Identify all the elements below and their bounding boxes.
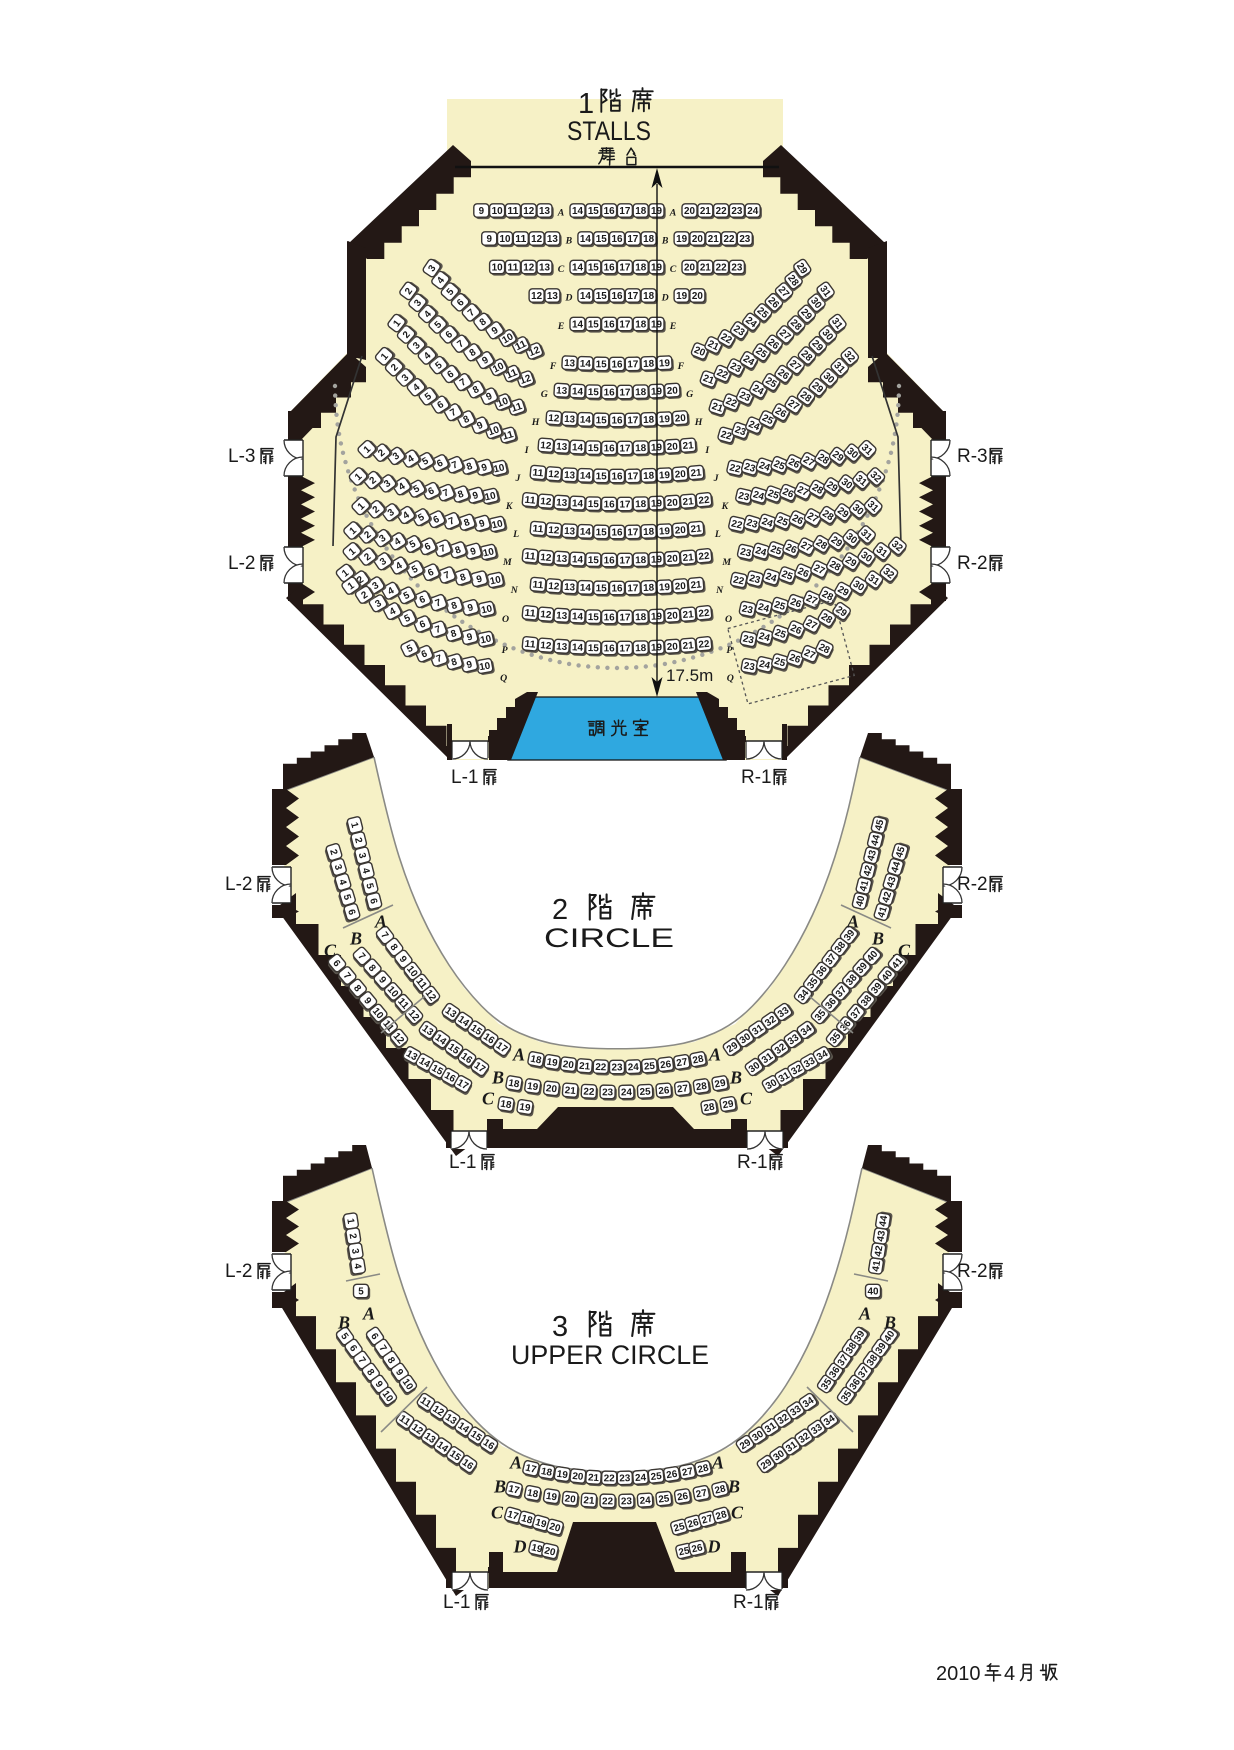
svg-text:17.5m: 17.5m bbox=[666, 666, 713, 685]
svg-text:21: 21 bbox=[690, 523, 702, 535]
svg-text:CIRCLE: CIRCLE bbox=[544, 923, 674, 953]
svg-text:17: 17 bbox=[619, 555, 631, 566]
svg-text:15: 15 bbox=[588, 443, 600, 454]
svg-text:C: C bbox=[670, 264, 677, 275]
svg-text:14: 14 bbox=[572, 498, 584, 509]
svg-text:21: 21 bbox=[708, 234, 720, 245]
svg-text:R-2: R-2 bbox=[957, 553, 988, 574]
svg-text:12: 12 bbox=[540, 640, 552, 652]
svg-text:C: C bbox=[491, 1503, 504, 1523]
svg-text:26: 26 bbox=[666, 1469, 679, 1482]
svg-text:14: 14 bbox=[580, 291, 592, 302]
svg-text:14: 14 bbox=[580, 415, 592, 426]
svg-text:13: 13 bbox=[564, 358, 576, 370]
svg-text:21: 21 bbox=[682, 609, 694, 621]
svg-text:19: 19 bbox=[659, 470, 671, 482]
svg-text:16: 16 bbox=[604, 612, 616, 623]
svg-text:B: B bbox=[337, 1313, 350, 1333]
svg-text:24: 24 bbox=[628, 1062, 640, 1073]
svg-text:R-1: R-1 bbox=[741, 767, 772, 788]
svg-text:L-2: L-2 bbox=[228, 553, 255, 574]
svg-text:18: 18 bbox=[643, 583, 655, 594]
svg-text:12: 12 bbox=[540, 440, 552, 452]
svg-text:21: 21 bbox=[682, 552, 694, 564]
svg-text:18: 18 bbox=[643, 415, 655, 426]
svg-text:M: M bbox=[502, 557, 512, 568]
svg-text:16: 16 bbox=[604, 443, 616, 454]
svg-text:44: 44 bbox=[878, 1214, 891, 1227]
svg-text:Q: Q bbox=[500, 673, 507, 684]
svg-text:O: O bbox=[725, 614, 732, 625]
svg-text:42: 42 bbox=[873, 1244, 886, 1257]
svg-text:13: 13 bbox=[564, 470, 576, 482]
svg-text:22: 22 bbox=[724, 234, 736, 245]
svg-text:E: E bbox=[669, 321, 677, 332]
svg-text:16: 16 bbox=[612, 471, 624, 482]
svg-text:16: 16 bbox=[612, 583, 624, 594]
svg-text:18: 18 bbox=[635, 443, 647, 454]
svg-text:17: 17 bbox=[619, 319, 631, 330]
svg-text:25: 25 bbox=[658, 1493, 671, 1505]
svg-text:D: D bbox=[513, 1537, 527, 1557]
svg-text:23: 23 bbox=[731, 262, 743, 273]
svg-text:15: 15 bbox=[588, 612, 600, 623]
svg-text:27: 27 bbox=[677, 1083, 690, 1095]
svg-text:11: 11 bbox=[515, 234, 527, 245]
svg-text:24: 24 bbox=[635, 1472, 647, 1484]
svg-text:17: 17 bbox=[627, 291, 639, 302]
svg-text:18: 18 bbox=[643, 471, 655, 482]
svg-text:15: 15 bbox=[588, 555, 600, 566]
svg-text:14: 14 bbox=[572, 262, 584, 273]
svg-text:11: 11 bbox=[532, 467, 544, 479]
svg-text:21: 21 bbox=[682, 496, 694, 508]
svg-text:12: 12 bbox=[523, 262, 535, 273]
svg-text:Q: Q bbox=[727, 673, 734, 684]
svg-text:21: 21 bbox=[564, 1085, 576, 1097]
svg-text:15: 15 bbox=[596, 471, 608, 482]
svg-text:18: 18 bbox=[635, 499, 647, 510]
svg-text:12: 12 bbox=[548, 525, 560, 537]
svg-text:L-2: L-2 bbox=[225, 1261, 252, 1282]
svg-text:19: 19 bbox=[556, 1469, 569, 1482]
svg-text:23: 23 bbox=[731, 206, 743, 217]
svg-text:17: 17 bbox=[619, 206, 631, 217]
svg-text:20: 20 bbox=[674, 525, 686, 537]
svg-text:17: 17 bbox=[627, 359, 639, 370]
svg-text:23: 23 bbox=[739, 234, 751, 245]
svg-text:16: 16 bbox=[604, 499, 616, 510]
svg-text:20: 20 bbox=[545, 1083, 558, 1095]
svg-text:24: 24 bbox=[621, 1087, 633, 1098]
svg-text:14: 14 bbox=[572, 206, 584, 217]
svg-text:14: 14 bbox=[580, 359, 592, 370]
svg-text:12: 12 bbox=[540, 552, 552, 564]
svg-text:11: 11 bbox=[524, 495, 537, 507]
svg-text:22: 22 bbox=[698, 639, 711, 651]
svg-text:A: A bbox=[512, 1045, 525, 1065]
svg-text:N: N bbox=[715, 585, 724, 596]
svg-text:16: 16 bbox=[612, 234, 624, 245]
svg-text:A: A bbox=[846, 912, 859, 932]
svg-text:D: D bbox=[707, 1537, 721, 1557]
svg-text:13: 13 bbox=[547, 234, 559, 245]
svg-text:18: 18 bbox=[643, 291, 655, 302]
svg-text:13: 13 bbox=[556, 553, 568, 565]
svg-text:20: 20 bbox=[692, 291, 704, 302]
svg-text:15: 15 bbox=[588, 643, 600, 654]
svg-text:9: 9 bbox=[479, 206, 485, 217]
svg-text:20: 20 bbox=[684, 262, 696, 273]
svg-text:2010: 2010 bbox=[936, 1663, 981, 1685]
svg-text:C: C bbox=[898, 941, 911, 961]
svg-text:C: C bbox=[482, 1089, 495, 1109]
svg-text:17: 17 bbox=[619, 612, 631, 623]
svg-text:26: 26 bbox=[658, 1085, 670, 1097]
svg-text:B: B bbox=[493, 1477, 506, 1497]
svg-text:STALLS: STALLS bbox=[567, 116, 651, 146]
svg-text:20: 20 bbox=[692, 234, 704, 245]
svg-text:20: 20 bbox=[684, 206, 696, 217]
svg-text:11: 11 bbox=[507, 262, 519, 273]
svg-text:A: A bbox=[362, 1304, 375, 1324]
svg-text:20: 20 bbox=[667, 553, 679, 565]
svg-text:21: 21 bbox=[583, 1495, 595, 1507]
svg-text:20: 20 bbox=[674, 581, 686, 593]
svg-text:12: 12 bbox=[540, 496, 552, 508]
svg-text:P: P bbox=[502, 645, 509, 656]
svg-text:14: 14 bbox=[580, 471, 592, 482]
svg-text:B: B bbox=[349, 929, 362, 949]
svg-text:19: 19 bbox=[545, 1491, 558, 1504]
svg-text:22: 22 bbox=[698, 551, 711, 563]
svg-text:A: A bbox=[858, 1304, 871, 1324]
svg-text:24: 24 bbox=[747, 206, 759, 217]
svg-text:13: 13 bbox=[564, 526, 576, 538]
svg-text:15: 15 bbox=[588, 387, 600, 398]
svg-text:22: 22 bbox=[595, 1062, 607, 1073]
svg-text:B: B bbox=[565, 236, 573, 247]
svg-text:21: 21 bbox=[588, 1472, 600, 1484]
svg-text:17: 17 bbox=[619, 643, 631, 654]
svg-text:20: 20 bbox=[667, 497, 679, 509]
svg-text:22: 22 bbox=[583, 1086, 595, 1098]
svg-text:18: 18 bbox=[635, 555, 647, 566]
svg-text:12: 12 bbox=[523, 206, 535, 217]
svg-text:C: C bbox=[558, 264, 565, 275]
svg-text:R-1: R-1 bbox=[737, 1152, 768, 1173]
svg-text:L: L bbox=[512, 529, 519, 540]
svg-text:14: 14 bbox=[572, 611, 584, 622]
svg-text:12: 12 bbox=[548, 413, 560, 425]
svg-text:25: 25 bbox=[644, 1061, 656, 1073]
svg-text:13: 13 bbox=[539, 262, 551, 273]
svg-text:18: 18 bbox=[635, 387, 647, 398]
svg-text:F: F bbox=[677, 361, 685, 372]
svg-text:16: 16 bbox=[612, 359, 624, 370]
svg-text:15: 15 bbox=[596, 234, 608, 245]
svg-text:11: 11 bbox=[532, 579, 544, 591]
svg-text:L-1: L-1 bbox=[443, 1592, 470, 1613]
svg-text:13: 13 bbox=[564, 414, 576, 426]
svg-text:10: 10 bbox=[492, 262, 504, 273]
svg-text:21: 21 bbox=[682, 440, 694, 452]
svg-text:19: 19 bbox=[676, 234, 688, 245]
svg-text:17: 17 bbox=[627, 583, 639, 594]
svg-text:A: A bbox=[708, 1045, 721, 1065]
svg-text:21: 21 bbox=[700, 206, 712, 217]
svg-text:18: 18 bbox=[643, 527, 655, 538]
svg-text:25: 25 bbox=[650, 1471, 663, 1483]
svg-text:13: 13 bbox=[547, 291, 559, 302]
svg-text:12: 12 bbox=[548, 469, 560, 481]
svg-text:L-2: L-2 bbox=[225, 874, 252, 895]
svg-text:17: 17 bbox=[619, 499, 631, 510]
svg-text:11: 11 bbox=[532, 523, 544, 535]
svg-text:20: 20 bbox=[674, 469, 686, 481]
svg-text:N: N bbox=[510, 585, 519, 596]
svg-text:R-2: R-2 bbox=[957, 1261, 988, 1282]
svg-text:17: 17 bbox=[619, 443, 631, 454]
svg-text:17: 17 bbox=[619, 387, 631, 398]
svg-text:13: 13 bbox=[556, 610, 568, 622]
svg-text:19: 19 bbox=[659, 526, 671, 538]
svg-text:UPPER CIRCLE: UPPER CIRCLE bbox=[511, 1340, 709, 1370]
svg-text:24: 24 bbox=[639, 1495, 651, 1507]
svg-text:R-1: R-1 bbox=[733, 1592, 764, 1613]
svg-text:B: B bbox=[729, 1068, 742, 1088]
svg-text:20: 20 bbox=[667, 441, 679, 453]
svg-text:27: 27 bbox=[676, 1057, 689, 1070]
svg-text:10: 10 bbox=[492, 206, 504, 217]
svg-text:22: 22 bbox=[716, 262, 728, 273]
svg-text:16: 16 bbox=[612, 291, 624, 302]
svg-text:13: 13 bbox=[556, 441, 568, 453]
svg-text:18: 18 bbox=[643, 359, 655, 370]
svg-text:L-1: L-1 bbox=[449, 1152, 476, 1173]
svg-text:10: 10 bbox=[500, 234, 512, 245]
svg-text:A: A bbox=[374, 912, 387, 932]
svg-text:18: 18 bbox=[635, 612, 647, 623]
svg-text:C: C bbox=[731, 1503, 744, 1523]
svg-text:23: 23 bbox=[602, 1087, 614, 1098]
svg-text:12: 12 bbox=[531, 234, 543, 245]
svg-text:A: A bbox=[711, 1453, 724, 1473]
svg-text:O: O bbox=[502, 614, 509, 625]
svg-text:14: 14 bbox=[572, 442, 584, 453]
svg-text:14: 14 bbox=[580, 583, 592, 594]
svg-text:20: 20 bbox=[674, 413, 686, 425]
svg-text:D: D bbox=[564, 293, 572, 304]
svg-text:23: 23 bbox=[619, 1473, 631, 1484]
svg-text:16: 16 bbox=[604, 319, 616, 330]
svg-text:20: 20 bbox=[667, 641, 679, 653]
svg-text:B: B bbox=[491, 1068, 504, 1088]
svg-text:B: B bbox=[883, 1313, 896, 1333]
svg-text:C: C bbox=[740, 1089, 753, 1109]
svg-text:15: 15 bbox=[596, 527, 608, 538]
svg-text:17: 17 bbox=[627, 415, 639, 426]
svg-text:17: 17 bbox=[627, 527, 639, 538]
svg-text:G: G bbox=[686, 389, 693, 400]
svg-text:16: 16 bbox=[604, 262, 616, 273]
svg-text:22: 22 bbox=[602, 1496, 614, 1507]
svg-text:16: 16 bbox=[604, 206, 616, 217]
svg-text:23: 23 bbox=[621, 1496, 633, 1507]
svg-text:14: 14 bbox=[572, 386, 584, 397]
svg-text:13: 13 bbox=[556, 385, 568, 397]
svg-text:21: 21 bbox=[579, 1061, 591, 1073]
svg-text:26: 26 bbox=[660, 1059, 673, 1071]
svg-text:40: 40 bbox=[868, 1286, 880, 1297]
svg-text:12: 12 bbox=[531, 291, 543, 302]
svg-text:16: 16 bbox=[612, 527, 624, 538]
svg-text:17: 17 bbox=[627, 234, 639, 245]
svg-text:20: 20 bbox=[667, 610, 679, 622]
svg-text:11: 11 bbox=[507, 206, 519, 217]
svg-text:13: 13 bbox=[539, 206, 551, 217]
svg-text:A: A bbox=[557, 208, 565, 219]
svg-text:20: 20 bbox=[572, 1471, 585, 1483]
svg-text:20: 20 bbox=[564, 1493, 577, 1505]
svg-text:14: 14 bbox=[580, 234, 592, 245]
svg-text:H: H bbox=[694, 417, 703, 428]
svg-text:16: 16 bbox=[604, 555, 616, 566]
svg-text:19: 19 bbox=[659, 358, 671, 370]
svg-text:28: 28 bbox=[695, 1081, 708, 1094]
svg-text:12: 12 bbox=[540, 609, 552, 621]
svg-text:B: B bbox=[661, 236, 669, 247]
svg-text:L: L bbox=[714, 529, 721, 540]
svg-text:11: 11 bbox=[524, 639, 537, 651]
svg-text:18: 18 bbox=[635, 643, 647, 654]
svg-text:19: 19 bbox=[526, 1081, 539, 1094]
svg-text:L-1: L-1 bbox=[451, 767, 478, 788]
svg-text:G: G bbox=[541, 389, 548, 400]
svg-text:16: 16 bbox=[604, 387, 616, 398]
svg-text:14: 14 bbox=[572, 554, 584, 565]
svg-text:A: A bbox=[509, 1453, 522, 1473]
svg-text:14: 14 bbox=[572, 642, 584, 653]
svg-text:9: 9 bbox=[486, 234, 492, 245]
svg-text:15: 15 bbox=[588, 262, 600, 273]
svg-text:22: 22 bbox=[698, 608, 711, 620]
svg-text:43: 43 bbox=[875, 1229, 888, 1242]
svg-text:23: 23 bbox=[612, 1062, 624, 1073]
svg-text:E: E bbox=[557, 321, 565, 332]
svg-text:17: 17 bbox=[619, 262, 631, 273]
svg-text:R-2: R-2 bbox=[957, 874, 988, 895]
svg-text:21: 21 bbox=[690, 467, 702, 479]
svg-text:19: 19 bbox=[546, 1057, 559, 1070]
svg-text:3: 3 bbox=[552, 1311, 568, 1343]
svg-text:F: F bbox=[549, 361, 557, 372]
svg-text:19: 19 bbox=[659, 414, 671, 426]
svg-text:41: 41 bbox=[871, 1259, 884, 1272]
svg-text:15: 15 bbox=[588, 319, 600, 330]
svg-text:B: B bbox=[727, 1477, 740, 1497]
svg-text:17: 17 bbox=[627, 471, 639, 482]
svg-text:21: 21 bbox=[700, 262, 712, 273]
svg-text:15: 15 bbox=[588, 206, 600, 217]
svg-text:11: 11 bbox=[524, 608, 537, 620]
svg-text:16: 16 bbox=[604, 643, 616, 654]
svg-text:B: B bbox=[871, 929, 884, 949]
svg-text:19: 19 bbox=[659, 582, 671, 594]
svg-text:15: 15 bbox=[596, 291, 608, 302]
svg-text:22: 22 bbox=[698, 495, 711, 507]
svg-text:18: 18 bbox=[635, 319, 647, 330]
svg-text:16: 16 bbox=[612, 415, 624, 426]
svg-text:21: 21 bbox=[690, 579, 702, 591]
svg-text:L-3: L-3 bbox=[228, 446, 255, 467]
svg-text:11: 11 bbox=[524, 551, 537, 563]
svg-text:13: 13 bbox=[556, 641, 568, 653]
svg-text:18: 18 bbox=[635, 262, 647, 273]
svg-text:20: 20 bbox=[667, 385, 679, 397]
svg-text:A: A bbox=[669, 208, 677, 219]
svg-text:H: H bbox=[531, 417, 540, 428]
svg-text:19: 19 bbox=[676, 291, 688, 302]
svg-text:15: 15 bbox=[596, 415, 608, 426]
svg-text:4: 4 bbox=[1004, 1663, 1015, 1685]
svg-text:20: 20 bbox=[562, 1059, 575, 1071]
svg-text:15: 15 bbox=[596, 583, 608, 594]
svg-text:P: P bbox=[726, 645, 733, 656]
svg-text:2: 2 bbox=[552, 894, 568, 926]
svg-text:D: D bbox=[661, 293, 669, 304]
svg-text:18: 18 bbox=[643, 234, 655, 245]
svg-text:25: 25 bbox=[639, 1086, 651, 1098]
svg-text:21: 21 bbox=[682, 640, 694, 652]
svg-text:R-3: R-3 bbox=[957, 446, 988, 467]
svg-text:14: 14 bbox=[580, 527, 592, 538]
svg-text:14: 14 bbox=[572, 319, 584, 330]
svg-text:22: 22 bbox=[604, 1473, 616, 1484]
svg-text:15: 15 bbox=[588, 499, 600, 510]
svg-text:12: 12 bbox=[548, 581, 560, 593]
svg-text:13: 13 bbox=[556, 497, 568, 509]
svg-text:13: 13 bbox=[564, 582, 576, 594]
svg-text:M: M bbox=[721, 557, 731, 568]
svg-text:15: 15 bbox=[596, 359, 608, 370]
svg-text:26: 26 bbox=[676, 1491, 689, 1504]
svg-text:5: 5 bbox=[358, 1286, 364, 1297]
svg-text:18: 18 bbox=[635, 206, 647, 217]
svg-text:C: C bbox=[324, 941, 337, 961]
svg-text:22: 22 bbox=[716, 206, 728, 217]
